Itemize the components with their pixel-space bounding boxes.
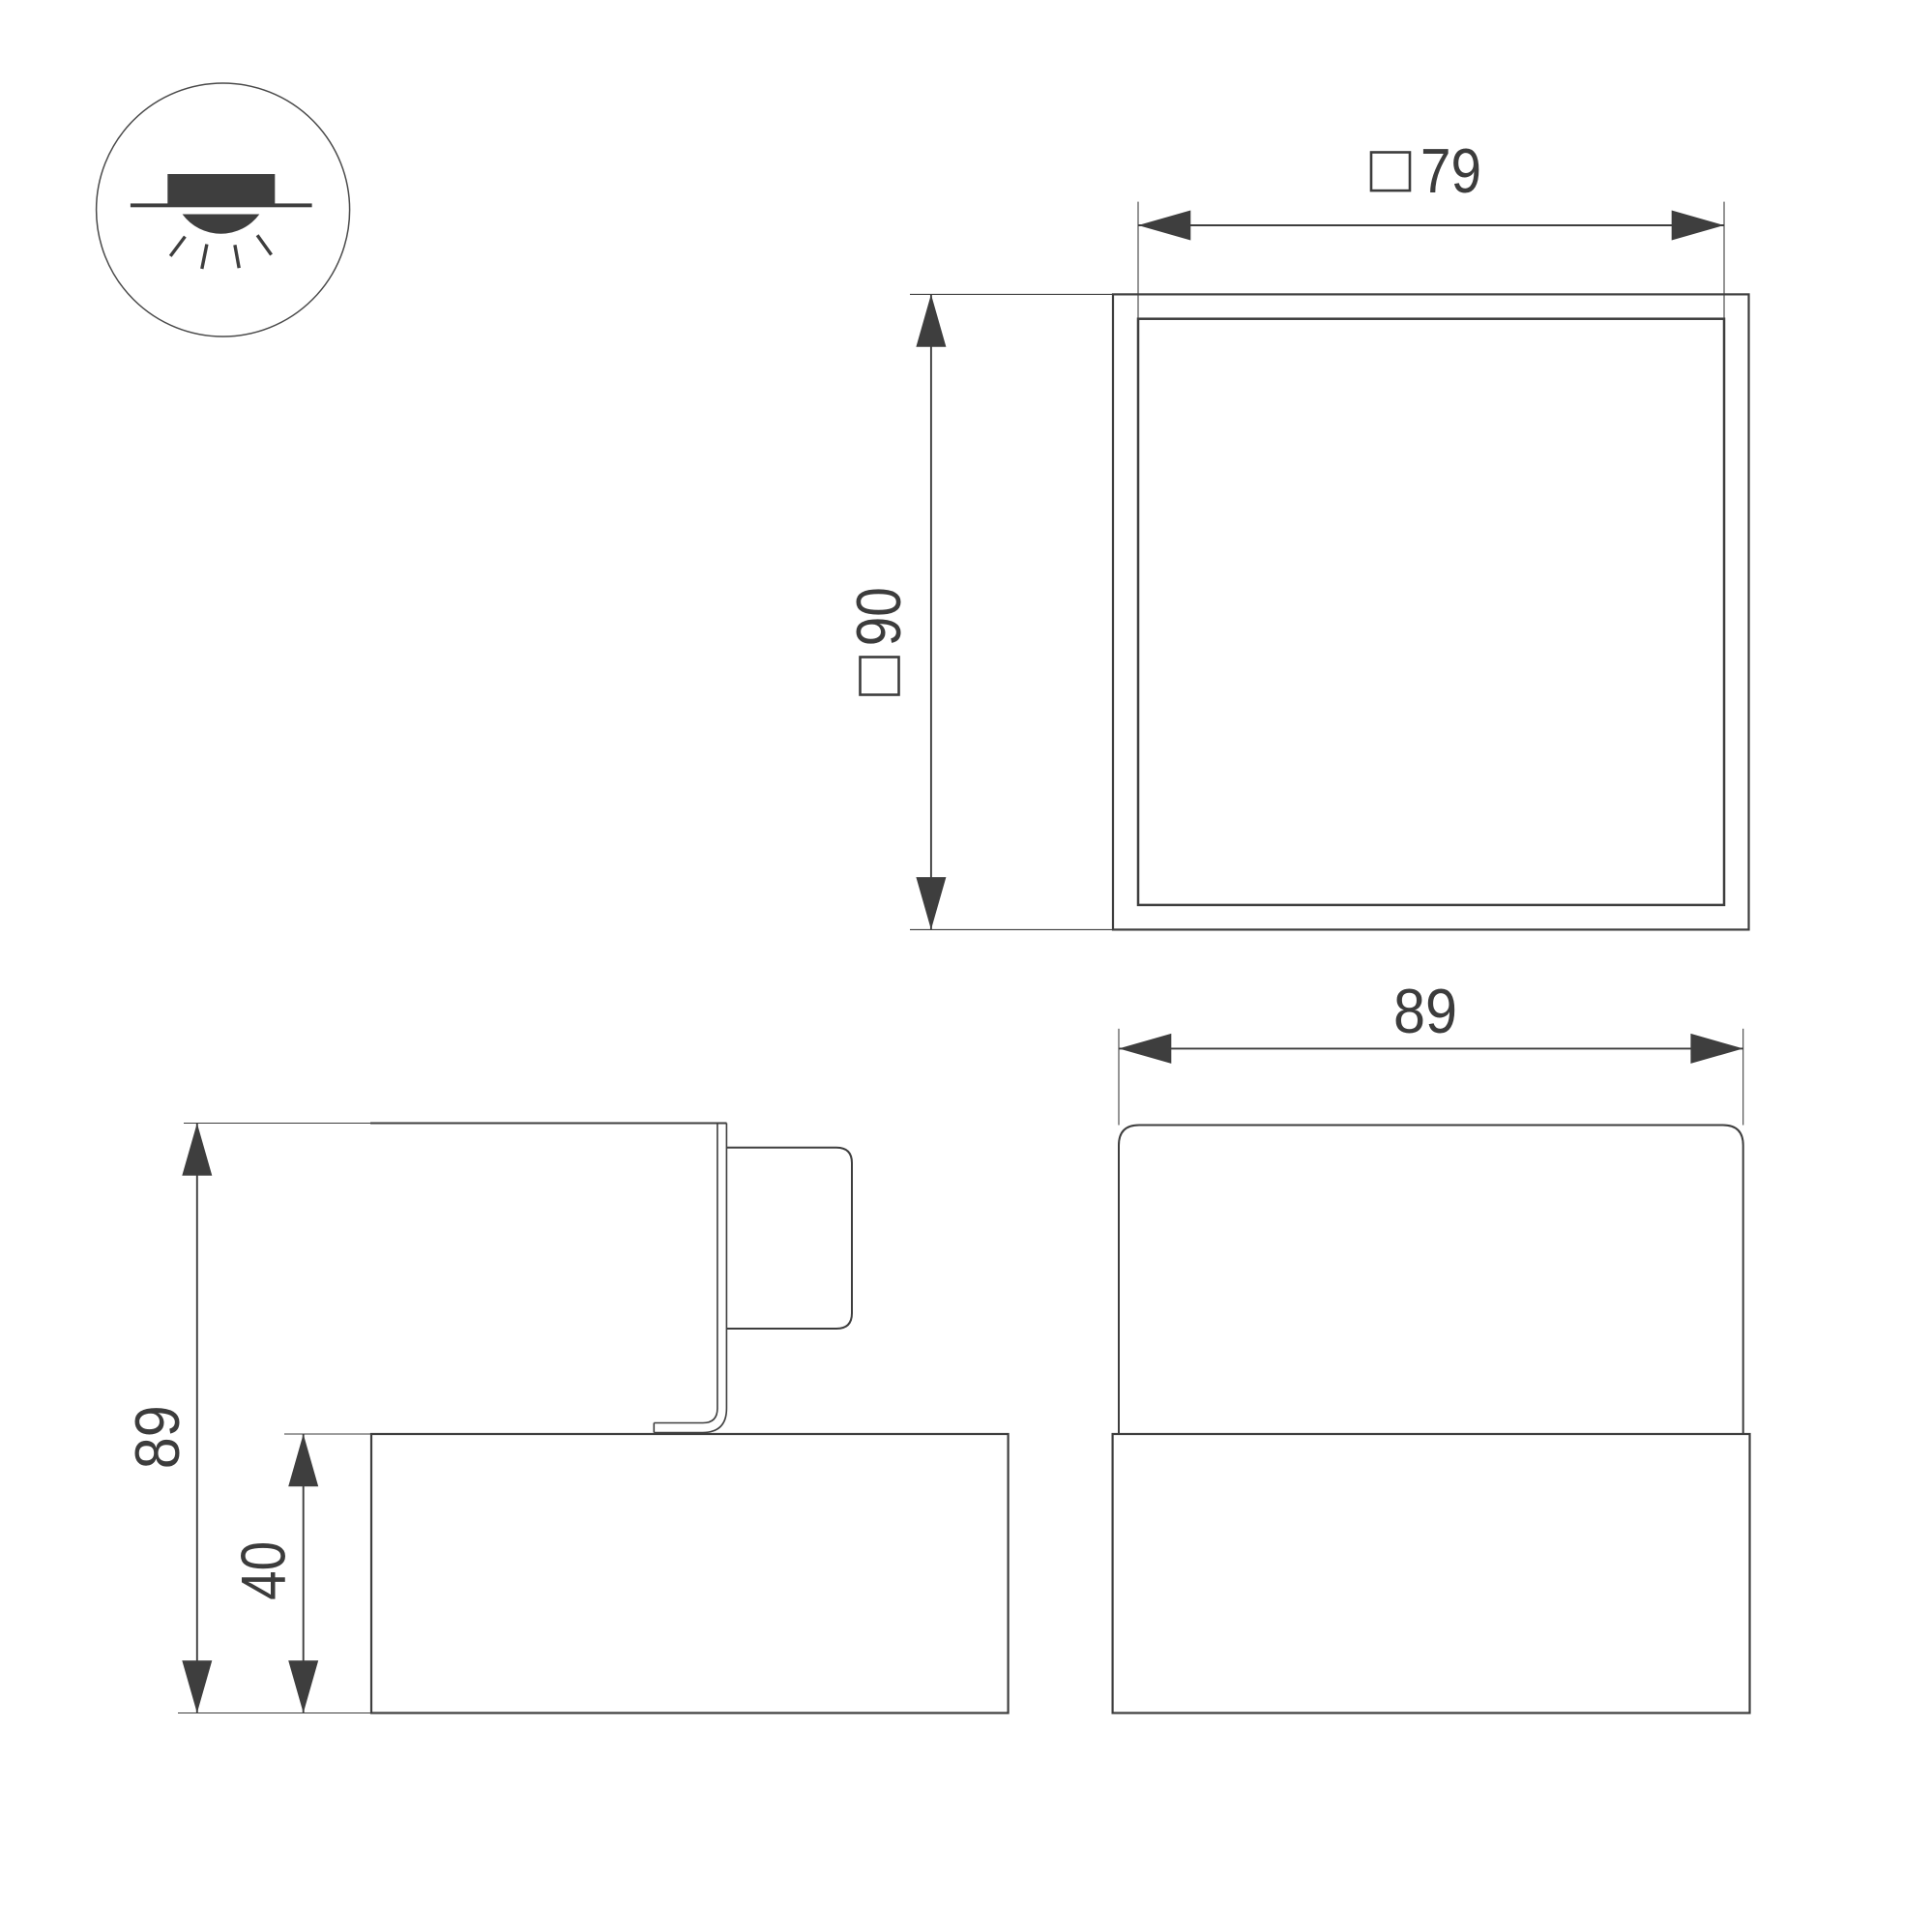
svg-text:79: 79: [1420, 135, 1481, 206]
svg-text:90: 90: [843, 587, 914, 646]
svg-text:89: 89: [122, 1405, 192, 1469]
svg-text:89: 89: [1393, 976, 1457, 1046]
svg-text:40: 40: [228, 1541, 299, 1600]
